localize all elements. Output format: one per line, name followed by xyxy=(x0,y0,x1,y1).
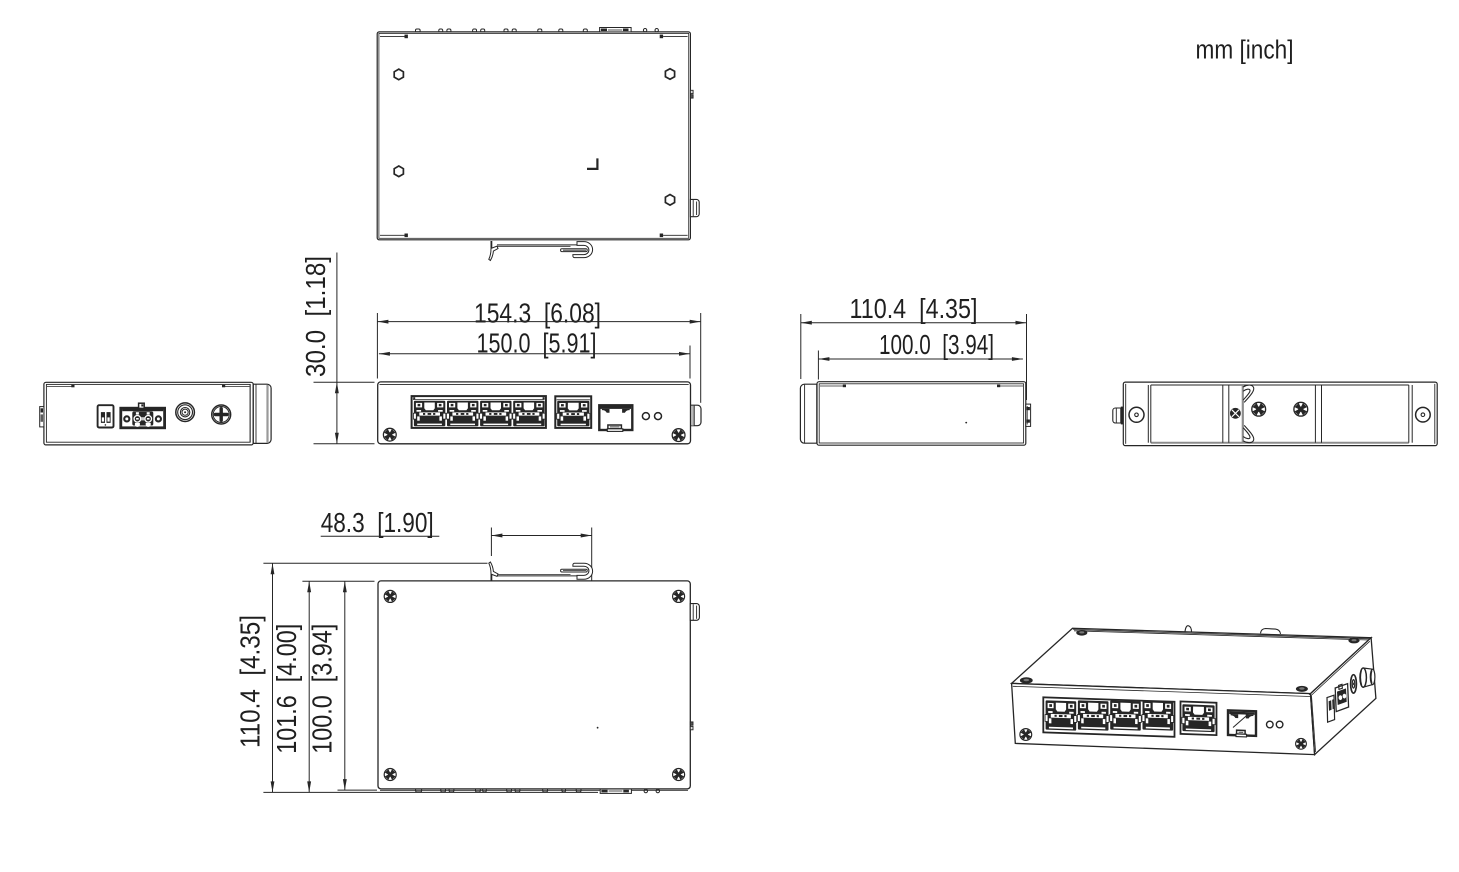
svg-text:48.3 [1.90]: 48.3 [1.90] xyxy=(321,507,434,538)
svg-text:101.6 [4.00]: 101.6 [4.00] xyxy=(271,624,302,754)
svg-text:30.0 [1.18]: 30.0 [1.18] xyxy=(300,256,331,377)
svg-text:mm [inch]: mm [inch] xyxy=(1196,37,1294,65)
svg-text:110.4 [4.35]: 110.4 [4.35] xyxy=(235,615,266,748)
svg-text:100.0 [3.94]: 100.0 [3.94] xyxy=(306,624,337,754)
svg-text:110.4 [4.35]: 110.4 [4.35] xyxy=(850,293,978,324)
svg-text:154.3 [6.08]: 154.3 [6.08] xyxy=(474,298,601,329)
svg-text:100.0 [3.94]: 100.0 [3.94] xyxy=(879,329,994,360)
